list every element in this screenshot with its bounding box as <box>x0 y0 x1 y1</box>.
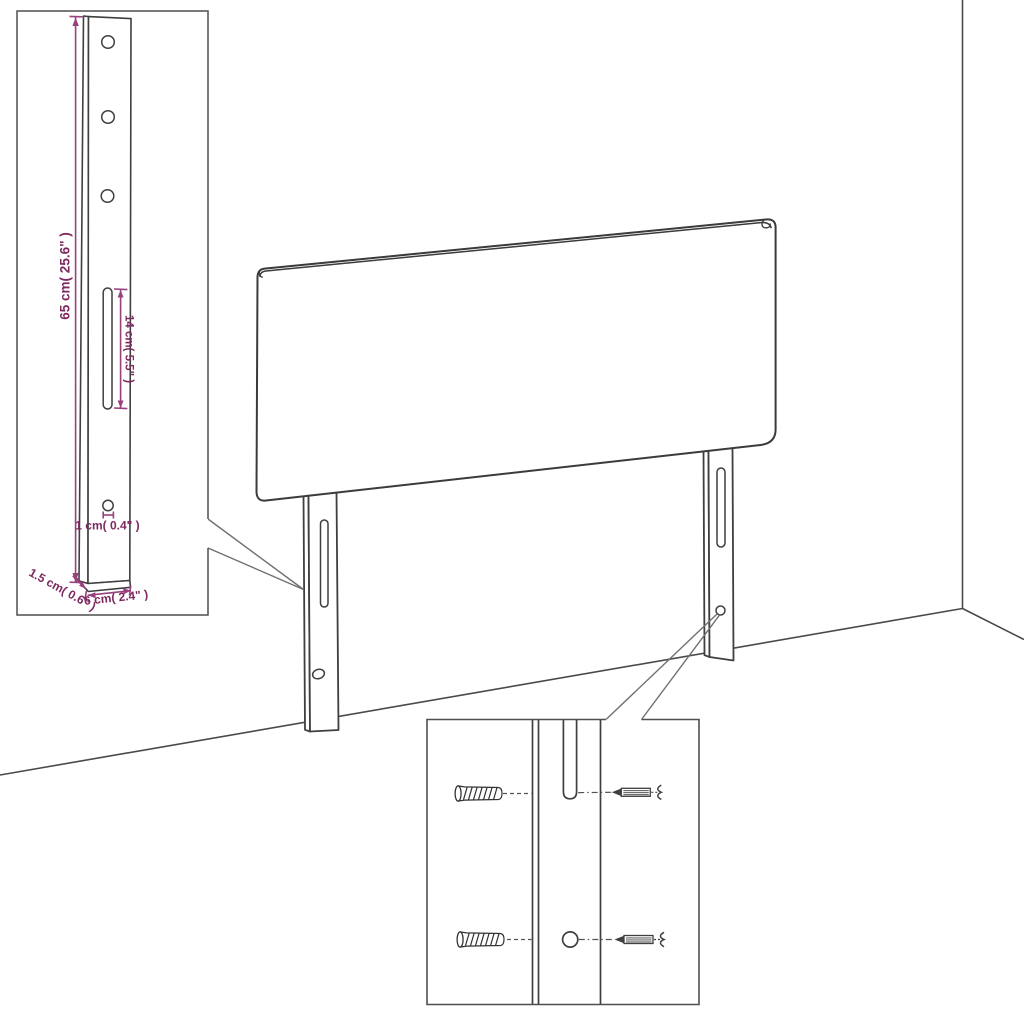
bracket-drawing <box>79 16 131 592</box>
floor-wall-line-right <box>963 609 1024 640</box>
callout-tail-right <box>642 615 720 720</box>
headboard-panel <box>256 219 775 500</box>
dim-slot-tick-top <box>114 289 127 290</box>
detail-callout-hardware <box>427 614 720 1005</box>
bracket-hole-3 <box>101 190 114 203</box>
bracket-slot <box>103 288 112 409</box>
bracket-hole-4 <box>103 500 113 510</box>
bracket-hole-2 <box>102 111 115 124</box>
headboard-assembly-diagram: 65 cm( 25.6" ) 14 cm( 5.5" ) 1 cm( 0.4" … <box>0 0 1024 1024</box>
right-leg <box>704 447 734 661</box>
dim-slot-tick-bottom <box>114 408 127 409</box>
hole-diameter-label: 1 cm( 0.4" ) <box>75 519 139 533</box>
bracket-height-label: 65 cm( 25.6" ) <box>58 232 73 319</box>
slot-length-label: 14 cm( 5.5" ) <box>123 315 135 383</box>
leg-closeup-hole <box>563 932 578 947</box>
headboard-front-face <box>256 219 775 500</box>
bracket-hole-1 <box>102 36 115 49</box>
left-leg-slot <box>321 520 329 607</box>
left-leg <box>304 492 339 732</box>
right-leg-slot <box>717 468 725 547</box>
right-leg-hole <box>716 606 725 615</box>
